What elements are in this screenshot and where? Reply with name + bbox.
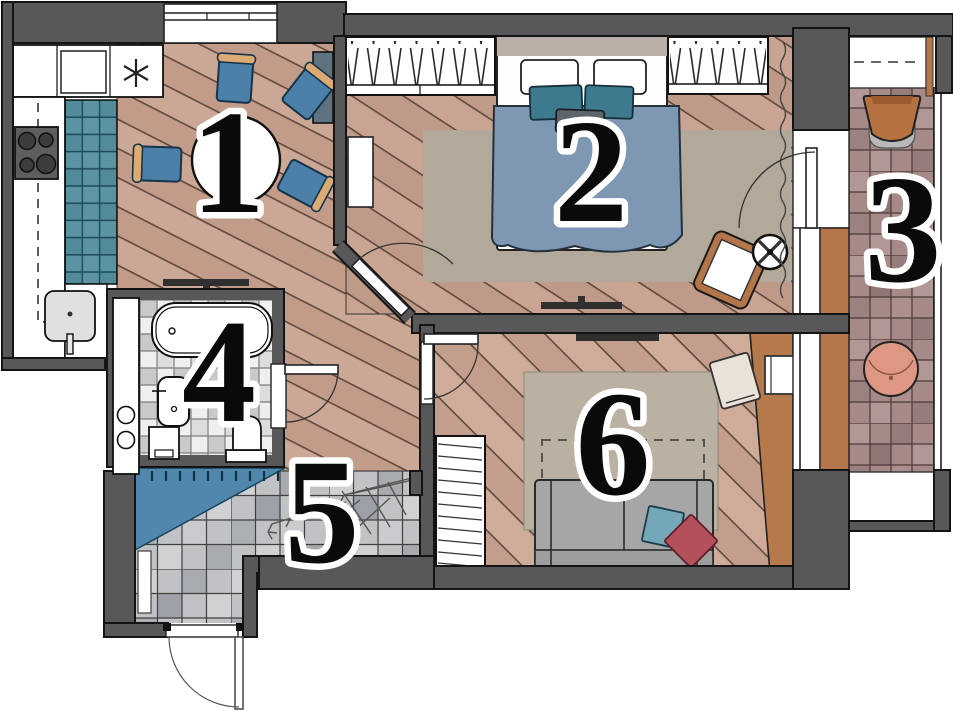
svg-text:3: 3 <box>865 145 942 315</box>
svg-text:2: 2 <box>554 90 628 254</box>
svg-text:1: 1 <box>191 81 265 245</box>
svg-text:5: 5 <box>285 429 360 595</box>
svg-text:6: 6 <box>576 361 651 527</box>
svg-text:4: 4 <box>182 290 256 454</box>
